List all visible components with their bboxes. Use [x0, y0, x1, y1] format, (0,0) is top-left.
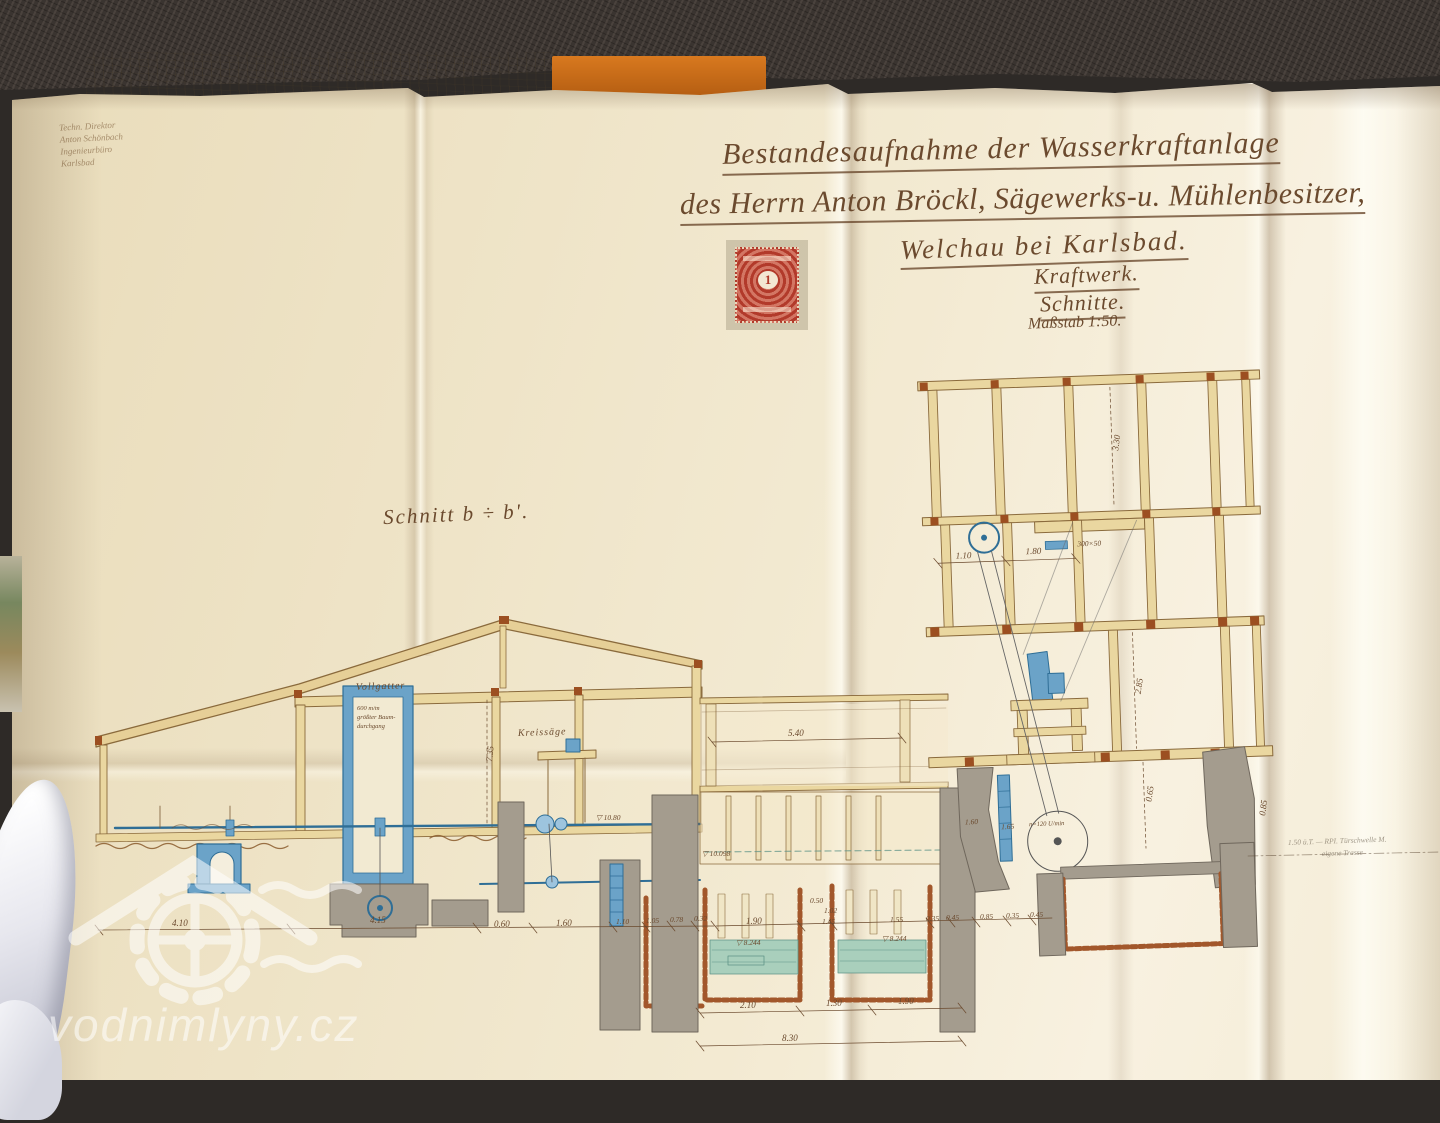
dim-text: 1.90 — [898, 996, 914, 1006]
dim-text: 1.45 — [822, 917, 835, 926]
dim-text: 1.10 — [955, 550, 972, 561]
stamp-value: 1 — [758, 271, 778, 289]
photo-edge-sliver — [0, 556, 22, 712]
watermark-text: vodnimlyny.cz — [48, 998, 359, 1052]
level-mark: ▽ 8.244 — [882, 934, 907, 943]
saw-blade-box — [566, 739, 580, 752]
pulley — [226, 820, 234, 836]
dim-text: 2.85 — [1133, 677, 1145, 694]
level-mark: ▽ 10.098 — [702, 849, 731, 858]
dim-text: 2.10 — [740, 1000, 756, 1010]
ridge-joint — [499, 616, 509, 624]
pencil-note-line1: 1.50 ü.T. — RPI. Türschwelle M. — [1288, 835, 1387, 847]
stamp-top-band — [743, 256, 791, 261]
dim-text: 1.55 — [890, 915, 903, 924]
vollgatter-label: Vollgatter — [356, 680, 406, 693]
standpipe — [997, 775, 1012, 861]
king-post — [500, 626, 506, 688]
dim-text: 0.45 — [1030, 910, 1043, 919]
title-massstab: Maßstab 1:50. — [1028, 312, 1122, 333]
dim-text: 0.35 — [1006, 911, 1019, 920]
kreissaege-label: Kreissäge — [517, 726, 567, 739]
level-mark: ▽ 10.80 — [596, 813, 621, 822]
dim-text: 0.78 — [670, 915, 683, 924]
dim-text: 0.32 — [694, 914, 707, 923]
photo-of-mill-blueprint: { "watermark": { "text": "vodnimlyny.cz"… — [0, 0, 1440, 1080]
dim-text: 5.40 — [788, 728, 804, 738]
vollgatter-note: durchgang — [357, 723, 386, 730]
dim-text: 0.50 — [810, 896, 823, 905]
dim-text: 1.60 — [965, 817, 979, 826]
vollgatter-note: 600 m/m — [357, 705, 380, 712]
pencil-note-line2: eigene Trasse — [1322, 848, 1364, 858]
flume-channels — [652, 694, 975, 1032]
posts — [928, 379, 1265, 757]
tailrace-pit — [1036, 842, 1258, 956]
vollgatter-note: größter Baum- — [357, 714, 395, 721]
dim-text: 0.60 — [494, 919, 510, 929]
dim-text: 3.30 — [1110, 434, 1122, 452]
dim-text: 0.85 — [980, 912, 993, 921]
drive-belts — [977, 520, 1147, 817]
stamp-bottom-band — [743, 307, 791, 312]
gear — [536, 815, 554, 833]
dim-text: 8.30 — [782, 1033, 798, 1043]
dim-text: 1.60 — [556, 918, 572, 928]
powerhouse-section: 1.10 1.80 3.30 2.85 0.65 0.85 1.60 1.65 … — [916, 370, 1280, 960]
dim-text: 0.85 — [1257, 799, 1269, 816]
signature-block: Techn. Direktor Anton Schönbach Ingenieu… — [59, 118, 125, 169]
dim-text: 1.02 — [824, 906, 837, 915]
dim-text: 7.35 — [484, 745, 496, 762]
dim-text: 1.65 — [1001, 822, 1015, 831]
rpm-label: n=120 U/min — [1029, 820, 1064, 828]
dim-text: 0.35 — [926, 914, 939, 923]
gear — [555, 818, 567, 830]
beam-size-label: 300×50 — [1076, 539, 1101, 549]
dim-text: 0.45 — [946, 913, 959, 922]
dim-text: 1.05 — [646, 916, 659, 925]
generator-machine — [1003, 650, 1095, 765]
dim-text: 1.80 — [1025, 546, 1042, 557]
watermark-wave-icon — [264, 959, 358, 969]
level-mark: ▽ 8.244 — [736, 938, 761, 947]
watermark-logo — [10, 838, 380, 1008]
watermark-wave-icon — [262, 885, 358, 895]
dim-chain-under-pits — [696, 1003, 966, 1051]
dim-text: 1.90 — [746, 916, 762, 926]
revenue-stamp: 1 — [735, 247, 799, 323]
dim-text: 1.10 — [616, 917, 629, 926]
circular-saw-bench — [538, 739, 596, 824]
dim-text: 0.65 — [1143, 785, 1155, 802]
dim-text: 1.30 — [826, 998, 842, 1008]
wooden-plank — [552, 56, 766, 96]
